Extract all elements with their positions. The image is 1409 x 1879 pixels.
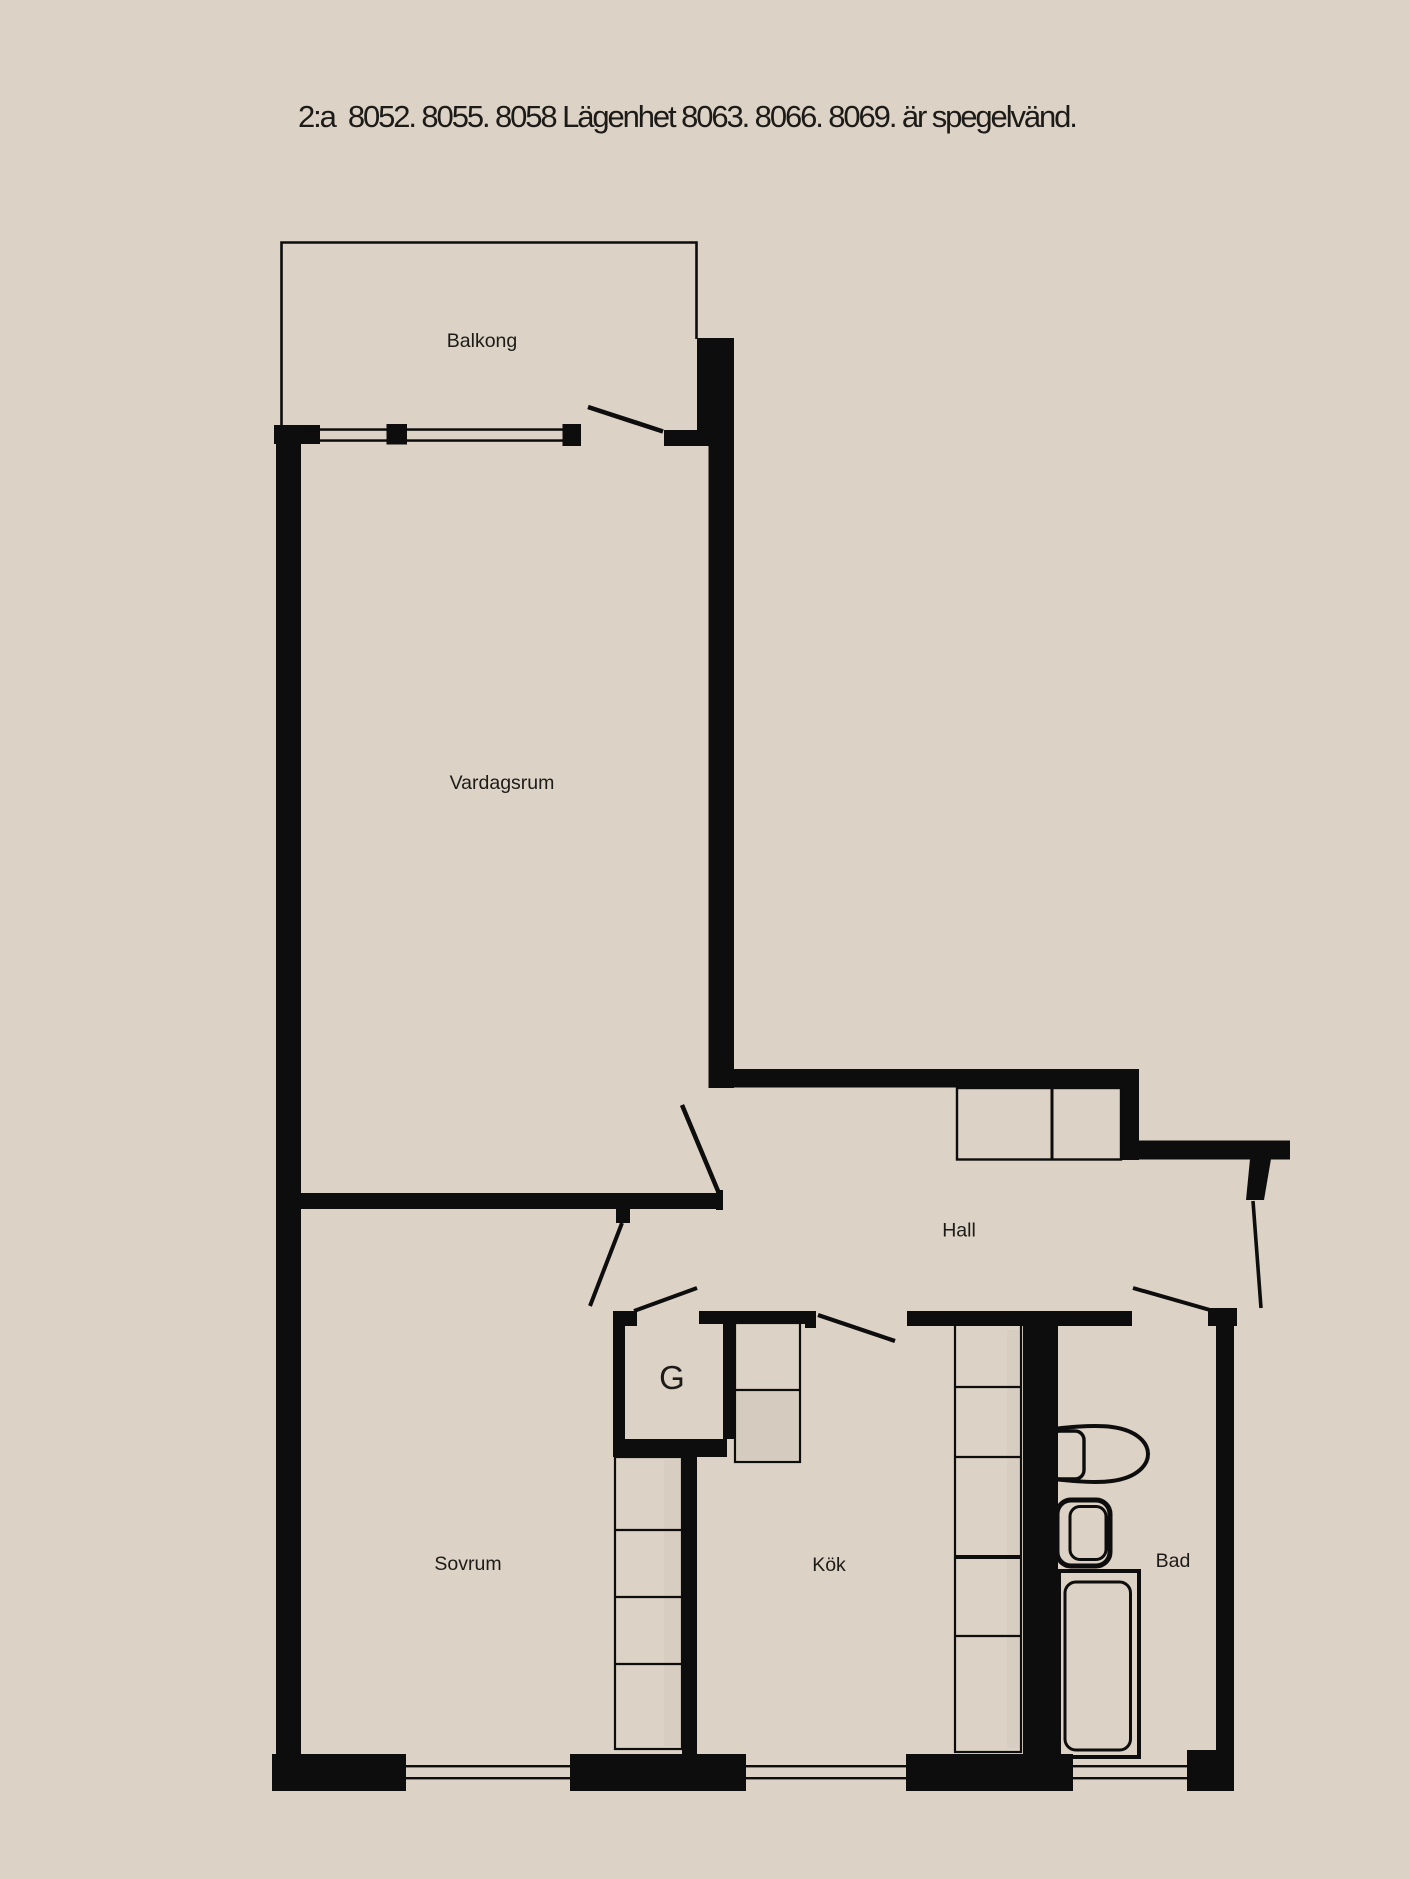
svg-text:Bad: Bad: [1156, 1550, 1191, 1572]
svg-text:Kök: Kök: [812, 1554, 846, 1576]
svg-text:Vardagsrum: Vardagsrum: [450, 772, 555, 794]
svg-text:G: G: [659, 1359, 685, 1396]
svg-text:Hall: Hall: [942, 1220, 976, 1242]
svg-text:2:a 8052. 8055. 8058 Lägenhet: 2:a 8052. 8055. 8058 Lägenhet 8063. 8066…: [298, 99, 1076, 134]
svg-text:Balkong: Balkong: [447, 330, 517, 352]
svg-text:Sovrum: Sovrum: [434, 1553, 501, 1575]
